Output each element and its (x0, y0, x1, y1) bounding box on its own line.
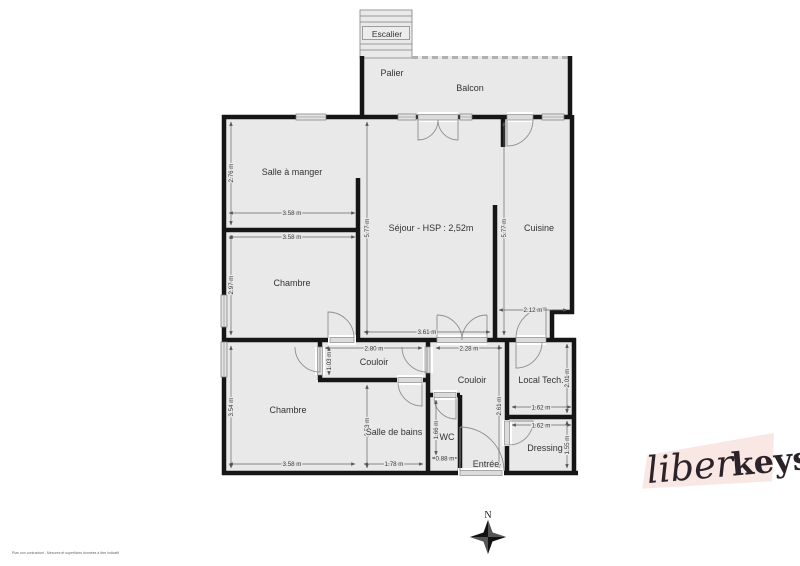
dim-couloir2-width: 2.28 m (460, 346, 479, 353)
compass-star-shading (470, 520, 506, 554)
room-label-chambre-2: Chambre (269, 405, 306, 415)
dim-wc-width: 0.88 m (436, 456, 455, 463)
room-label-cuisine: Cuisine (524, 223, 554, 233)
dim-local-tech-width: 1.62 m (532, 405, 551, 412)
dim-sejour-width: 3.61 m (418, 329, 437, 336)
dim-chambre1-width: 3.58 m (283, 234, 302, 241)
room-label-chambre-1: Chambre (273, 278, 310, 288)
room-label-dressing: Dressing (527, 443, 563, 453)
room-label-salle-a-manger: Salle à manger (262, 167, 323, 177)
dim-chambre1-height: 2.97 m (228, 276, 235, 295)
logo-text-liber: liber (645, 441, 738, 492)
room-label-couloir-1: Couloir (360, 357, 389, 367)
dim-sejour-height: 5.77 m (364, 219, 371, 238)
dim-couloir1-height: 1.03 m (326, 352, 333, 371)
compass: N (470, 510, 506, 554)
dim-dressing-width: 1.62 m (532, 423, 551, 430)
room-label-balcon: Balcon (456, 83, 484, 93)
logo-text-keys: keys (730, 439, 800, 484)
dim-dressing-height: 1.55 m (564, 436, 571, 455)
room-label-local-tech: Local Tech. (518, 375, 563, 385)
liberkeys-logo: liberkeys (638, 430, 800, 493)
dim-salle-de-bains-width: 1.78 m (385, 461, 404, 468)
dim-chambre2-height: 3.54 m (228, 398, 235, 417)
compass-north-label: N (484, 510, 491, 521)
dim-couloir2-height: 2.61 m (496, 397, 503, 416)
dim-couloir1-width: 2.80 m (365, 346, 384, 353)
dim-chambre2-width: 3.58 m (283, 461, 302, 468)
room-label-escalier: Escalier (372, 29, 402, 39)
dim-salle-a-manger-height: 2.76 m (228, 164, 235, 183)
room-label-wc: WC (440, 432, 455, 442)
room-label-salle-de-bains: Salle de bains (366, 427, 423, 437)
room-label-palier: Palier (380, 68, 403, 78)
disclaimer-text: Plan non contractuel - Mesures et superf… (12, 551, 119, 555)
floor-plan-canvas: 3.58 m 3.58 m 2.76 m 2.97 m 3.54 m 3.58 … (0, 0, 800, 566)
room-label-sejour: Séjour - HSP : 2,52m (389, 223, 474, 233)
floor-plan-page: 3.58 m 3.58 m 2.76 m 2.97 m 3.54 m 3.58 … (0, 0, 800, 566)
room-label-couloir-2: Couloir (458, 375, 487, 385)
dim-salle-a-manger-width: 3.58 m (283, 210, 302, 217)
room-label-entree: Entrée (473, 459, 500, 469)
dim-cuisine-width: 2.12 m (524, 307, 543, 314)
dim-cuisine-height: 5.77 m (501, 219, 508, 238)
dim-local-tech-height: 2.01 m (564, 369, 571, 388)
room-fills (224, 10, 576, 473)
logo-text: liberkeys (645, 435, 800, 492)
